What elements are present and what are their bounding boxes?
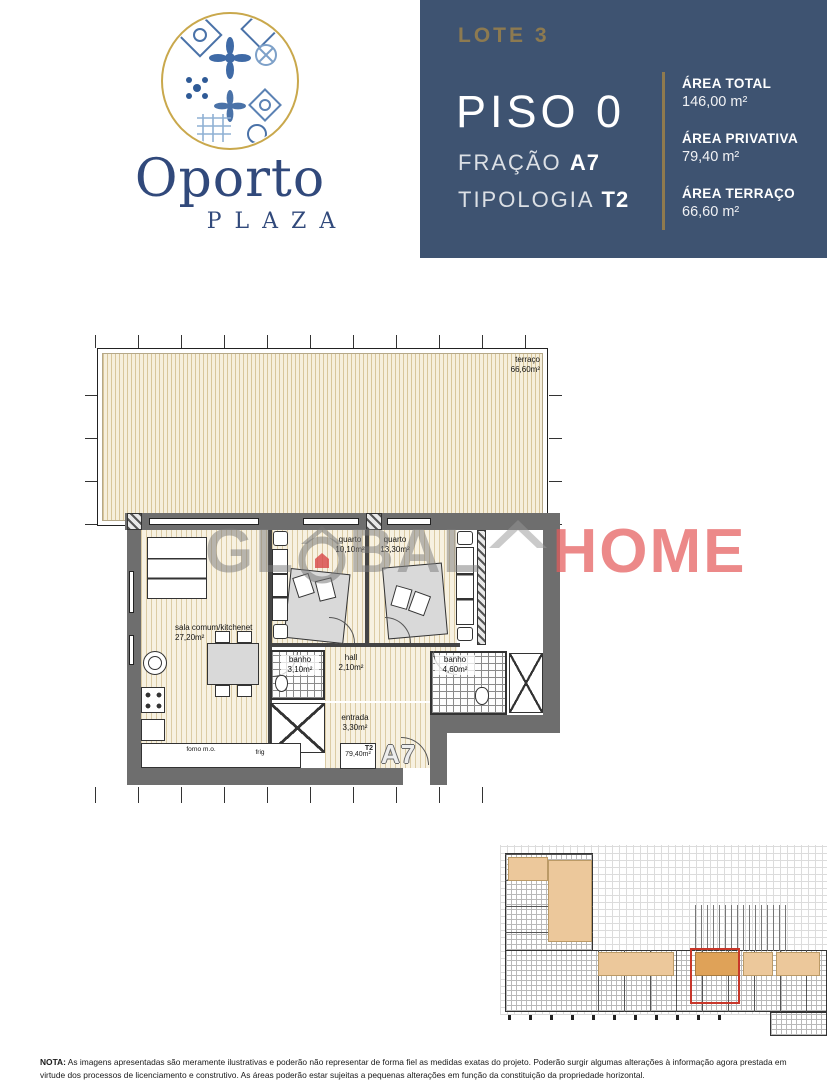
tipologia-value: T2 [602, 187, 630, 212]
note-label: NOTA: [40, 1057, 66, 1067]
wardrobe-quarto-2 [456, 547, 474, 625]
lote-title: LOTE 3 [458, 24, 550, 48]
legal-note: NOTA: As imagens apresentadas são merame… [40, 1056, 792, 1083]
unit-stamp: T2 79,40m² [340, 743, 376, 769]
logo-subname: PLAZA [40, 209, 420, 234]
chair-icon [215, 685, 230, 697]
nightstand-icon [273, 624, 288, 639]
nightstand-icon [457, 531, 473, 545]
ticks-left [85, 391, 97, 525]
dining-table [207, 643, 259, 685]
wall-right [543, 513, 560, 733]
area-privativa: ÁREA PRIVATIVA 79,40 m² [682, 131, 827, 165]
toilet-2-icon [475, 687, 489, 705]
floor-plan: terraço 66,60m² [85, 335, 565, 815]
watermark-text-home: HOME [553, 523, 747, 582]
ticks-top [95, 335, 550, 348]
brochure-page: Oporto PLAZA LOTE 3 PISO 0 FRAÇÃO A7 TIP… [0, 0, 827, 1091]
fracao-line: FRAÇÃO A7 [458, 150, 600, 176]
keyplan-terrace-hatch [695, 905, 788, 951]
logo-name: Oporto [40, 152, 420, 207]
fracao-value: A7 [570, 150, 600, 175]
stove-icon [141, 687, 165, 713]
window-left-2 [129, 635, 134, 665]
wall-bottom [127, 768, 403, 785]
nightstand-icon [273, 531, 288, 546]
chair-icon [237, 685, 252, 697]
keyplan-roof-5 [776, 952, 820, 976]
areas-list: ÁREA TOTAL 146,00 m² ÁREA PRIVATIVA 79,4… [682, 76, 827, 241]
kitchen-counter [141, 743, 301, 768]
ticks-right [549, 391, 562, 525]
column-hatch-1 [127, 513, 142, 530]
wall-step [430, 733, 447, 785]
wall-banho2-bottom [425, 715, 560, 733]
room-label-entrada: entrada 3,30m² [333, 713, 377, 733]
brand-logo: Oporto PLAZA [40, 6, 420, 258]
keyplan-roof-4 [743, 952, 773, 976]
sofa-icon [147, 537, 207, 599]
fridge-label: frig [245, 749, 275, 757]
piso-title: PISO 0 [456, 86, 625, 138]
room-label-sala: sala comum/kitchenet 27,20m² [175, 623, 275, 643]
spec-panel: LOTE 3 PISO 0 FRAÇÃO A7 TIPOLOGIA T2 ÁRE… [420, 0, 827, 258]
shower-icon [509, 653, 543, 713]
dishwasher-icon [141, 719, 165, 741]
area-total: ÁREA TOTAL 146,00 m² [682, 76, 827, 110]
keyplan-roof-3 [598, 952, 674, 976]
window-quarto-1 [303, 518, 359, 525]
gold-divider [662, 72, 665, 230]
tipologia-label: TIPOLOGIA [458, 187, 593, 212]
ticks-bottom [95, 787, 485, 803]
wardrobe-quarto-1 [272, 549, 288, 621]
fracao-label: FRAÇÃO [458, 150, 562, 175]
tipologia-line: TIPOLOGIA T2 [458, 187, 629, 213]
column-hatch-2 [366, 513, 382, 530]
keyplan-columns-row [508, 1015, 728, 1020]
room-label-banho-1: banho 3,10m² [281, 655, 319, 675]
keyplan-annex [770, 1012, 827, 1036]
keyplan-unit-highlight [690, 948, 740, 1004]
area-terraco: ÁREA TERRAÇO 66,60 m² [682, 186, 827, 220]
window-sala [149, 518, 259, 525]
keyplan-roof-2 [548, 860, 592, 942]
unit-letter: A7 [381, 739, 416, 770]
key-plan [500, 845, 827, 1037]
nightstand-icon [457, 627, 473, 641]
window-left-1 [129, 571, 134, 613]
wall-corridor [268, 643, 460, 647]
keyplan-roof-1 [508, 857, 548, 881]
room-label-banho-2: banho 4,60m² [435, 655, 475, 675]
oven-label: forno m.o. [181, 746, 221, 754]
window-quarto-2 [387, 518, 431, 525]
room-label-terraco: terraço 66,60m² [450, 355, 540, 375]
room-label-quarto-2: quarto 13,30m² [373, 535, 417, 555]
room-label-quarto-1: quarto 10,10m² [330, 535, 370, 555]
room-label-hall: hall 2,10m² [333, 653, 369, 673]
wall-notch-hatch [477, 530, 486, 645]
toilet-1-icon [275, 675, 288, 692]
azulejo-medallion-icon [159, 10, 301, 152]
note-text: As imagens apresentadas são meramente il… [40, 1057, 787, 1080]
sink-inner-icon [148, 656, 162, 670]
